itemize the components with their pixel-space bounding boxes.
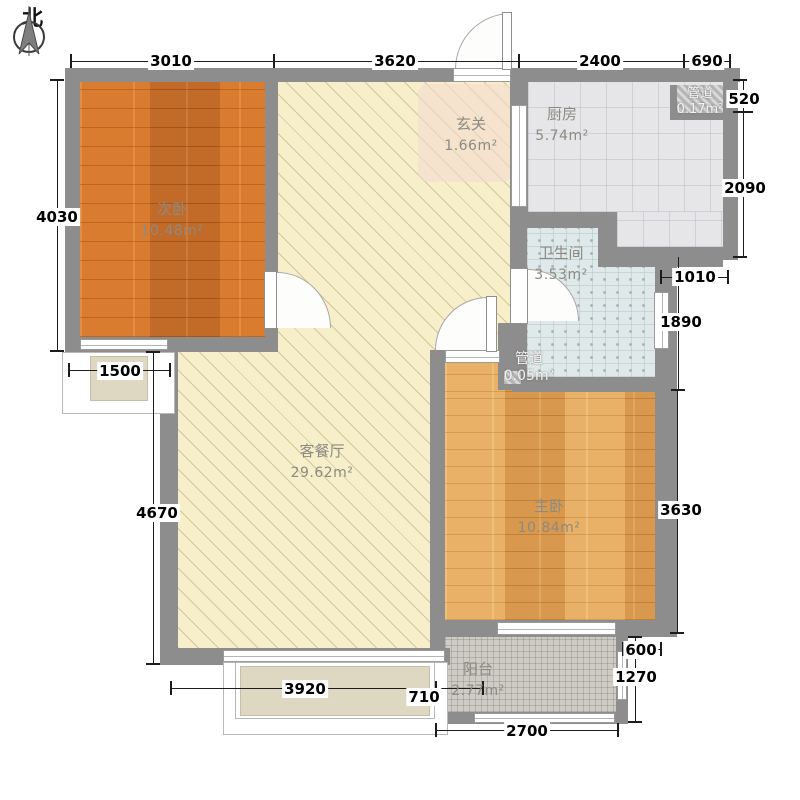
living-dining-label: 客餐厅 29.62m² (262, 440, 382, 484)
duct-area: 0.05m² (499, 368, 559, 385)
dim-right-600: 600 (623, 641, 658, 659)
dim-left-1500: 1500 (97, 362, 143, 380)
living-bay-opening (223, 650, 445, 662)
wall-top (65, 68, 740, 82)
dim-tick (727, 270, 729, 284)
room-area: 29.62m² (262, 463, 382, 484)
dim-bottom-3920: 3920 (282, 680, 328, 698)
second-bedroom-window (80, 339, 168, 350)
dim-tick (733, 256, 747, 258)
dim-tick (50, 79, 64, 81)
dim-tick (683, 54, 685, 68)
dim-tick (169, 363, 171, 377)
dim-tick (146, 351, 160, 353)
dim-top-3620: 3620 (372, 52, 418, 70)
dim-top-690: 690 (689, 52, 724, 70)
duct-top-label: 管道 0.17m² (673, 86, 727, 117)
dim-tick (733, 111, 753, 113)
room-name: 客餐厅 (262, 440, 382, 463)
hallway-label: 玄关 1.66m² (425, 113, 517, 157)
dim-left-4030: 4030 (34, 208, 80, 226)
room-name: 阳台 (428, 658, 528, 681)
room-area: 2.77m² (428, 681, 528, 702)
master-door-leaf (486, 296, 497, 352)
dim-tick (660, 642, 662, 656)
dim-tick (617, 723, 619, 737)
bay-window-bottom-sill (240, 666, 430, 716)
dim-tick (670, 632, 684, 634)
dim-tick (146, 663, 160, 665)
dim-right-2090: 2090 (722, 179, 768, 197)
master-bedroom-label: 主卧 10.84m² (489, 495, 609, 539)
duct-area: 0.17m² (673, 102, 727, 118)
second-bedroom-label: 次卧 10.48m² (112, 198, 232, 242)
dim-left-4670: 4670 (134, 504, 180, 522)
dim-right-1270: 1270 (613, 668, 659, 686)
dim-tick (671, 389, 685, 391)
room-name: 次卧 (112, 198, 232, 221)
room-area: 10.48m² (112, 221, 232, 242)
dim-tick (435, 723, 437, 737)
room-name: 玄关 (425, 113, 517, 136)
duct-name: 管道 (673, 86, 727, 102)
dim-top-2400: 2400 (577, 52, 623, 70)
duct-small-label: 管道 0.05m² (499, 351, 559, 385)
master-bedroom-window (497, 622, 616, 635)
dim-tick (50, 350, 64, 352)
floor-plan: 北 (0, 0, 800, 800)
balcony-label: 阳台 2.77m² (428, 658, 528, 702)
dim-tick (518, 54, 520, 68)
dim-right-3630: 3630 (658, 501, 704, 519)
dim-right-1890: 1890 (658, 313, 704, 331)
kitchen-floor-extension (617, 212, 723, 247)
room-area: 1.66m² (425, 136, 517, 157)
room-area: 10.84m² (489, 518, 609, 539)
room-name: 卫生间 (511, 242, 611, 265)
kitchen-label: 厨房 5.74m² (512, 103, 612, 147)
entrance-threshold (453, 68, 511, 82)
wall-kitchen-bathroom (510, 212, 617, 228)
dim-bottom-2700: 2700 (504, 722, 550, 740)
dim-right-1010: 1010 (672, 268, 718, 286)
second-bedroom-door-leaf (264, 271, 277, 329)
dim-tick (273, 54, 275, 68)
compass-arrow-icon (17, 6, 41, 58)
dim-right-520: 520 (726, 90, 761, 108)
dim-tick (729, 54, 731, 68)
room-name: 厨房 (512, 103, 612, 126)
dim-tick (660, 270, 662, 284)
bathroom-label: 卫生间 3.53m² (511, 242, 611, 286)
dim-tick (170, 681, 172, 695)
dim-tick (628, 721, 642, 723)
dim-tick (68, 363, 70, 377)
wall-master-left (430, 350, 445, 665)
room-area: 5.74m² (512, 126, 612, 147)
room-area: 3.53m² (511, 265, 611, 286)
dim-tick (628, 636, 642, 638)
dim-top-3010: 3010 (148, 52, 194, 70)
dim-tick (70, 54, 72, 68)
dim-tick (733, 79, 747, 81)
duct-name: 管道 (499, 351, 559, 368)
room-name: 主卧 (489, 495, 609, 518)
